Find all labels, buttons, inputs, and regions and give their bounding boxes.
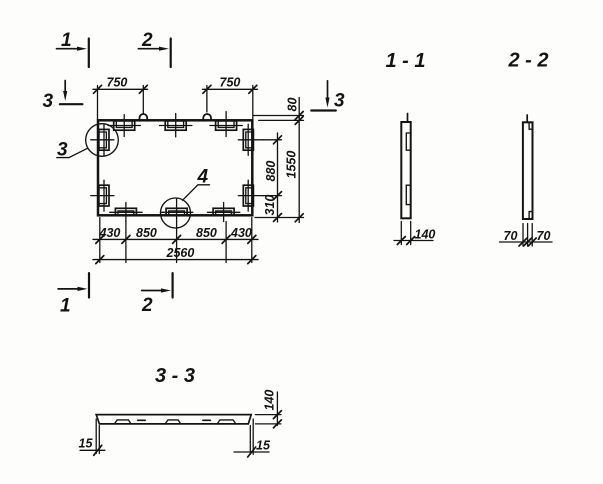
svg-text:3 - 3: 3 - 3 <box>155 365 195 387</box>
svg-text:850: 850 <box>136 226 157 240</box>
svg-text:140: 140 <box>415 228 436 242</box>
svg-text:140: 140 <box>263 390 277 411</box>
svg-text:430: 430 <box>230 226 252 240</box>
svg-text:70: 70 <box>537 229 551 243</box>
svg-text:310: 310 <box>263 195 277 216</box>
svg-text:880: 880 <box>264 161 278 182</box>
svg-text:15: 15 <box>79 437 94 451</box>
svg-text:15: 15 <box>256 439 271 453</box>
svg-text:80: 80 <box>286 98 300 112</box>
svg-text:70: 70 <box>504 229 518 243</box>
svg-text:1550: 1550 <box>285 151 299 179</box>
svg-text:750: 750 <box>220 76 241 90</box>
svg-text:4: 4 <box>197 167 209 188</box>
svg-text:2: 2 <box>141 30 153 51</box>
svg-text:2: 2 <box>141 295 153 316</box>
svg-text:2560: 2560 <box>166 246 195 260</box>
svg-text:750: 750 <box>107 76 128 90</box>
svg-text:430: 430 <box>99 226 121 240</box>
svg-text:850: 850 <box>196 226 217 240</box>
svg-text:3: 3 <box>43 91 54 112</box>
svg-text:3: 3 <box>334 91 345 112</box>
svg-text:1: 1 <box>60 296 71 317</box>
svg-text:1 - 1: 1 - 1 <box>386 50 426 72</box>
svg-text:2 - 2: 2 - 2 <box>508 50 549 72</box>
svg-text:3: 3 <box>57 140 68 161</box>
svg-text:1: 1 <box>61 30 72 51</box>
